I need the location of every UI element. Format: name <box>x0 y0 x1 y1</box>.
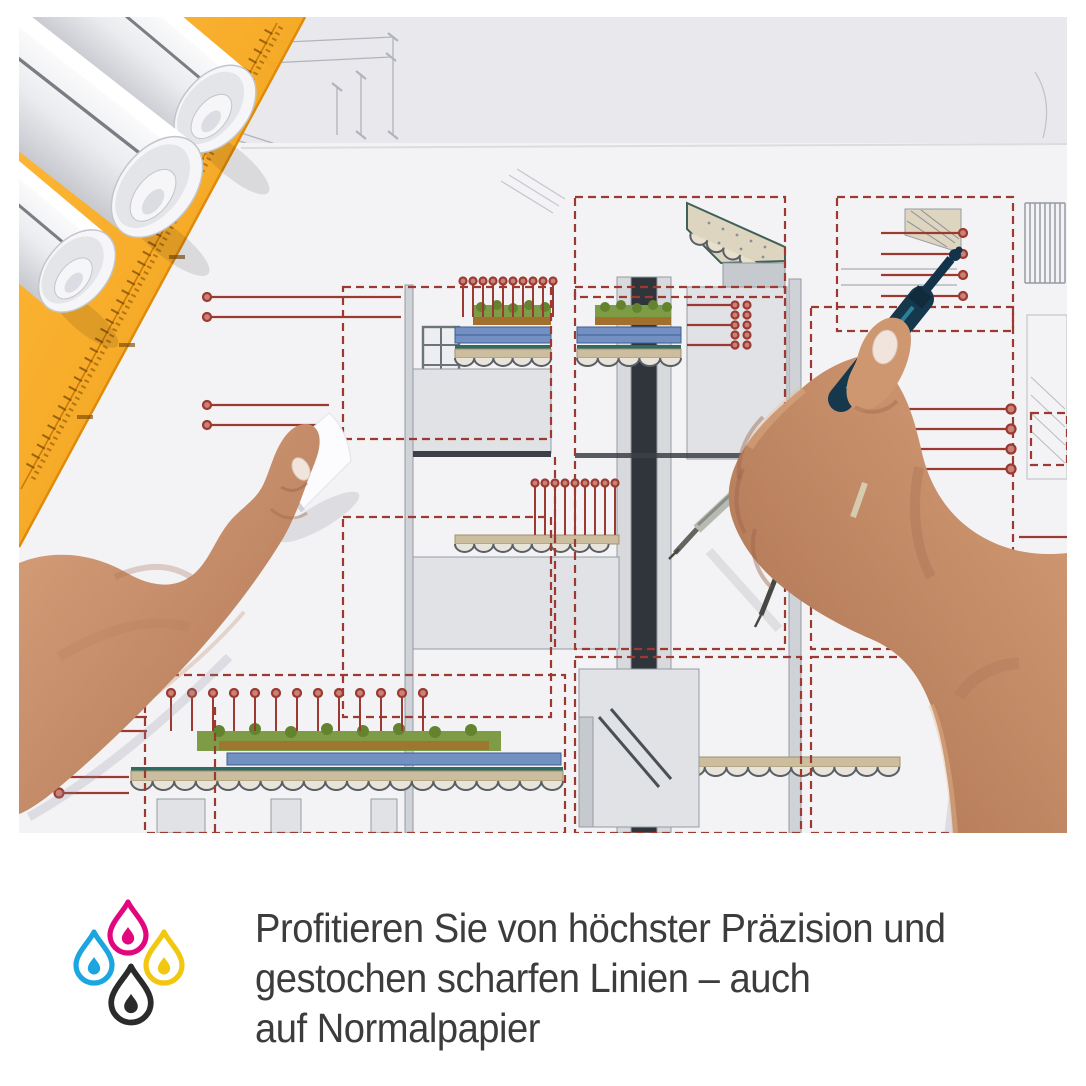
black-drop-icon <box>111 966 151 1022</box>
cmyk-ink-drops-icon <box>50 872 200 1042</box>
blueprint-photo <box>19 17 1067 833</box>
stair-detail <box>579 669 699 827</box>
caption-line-3: auf Normalpapier <box>255 1003 999 1053</box>
photo-scene <box>19 17 1067 833</box>
caption-line-1: Profitieren Sie von höchster Präzision u… <box>255 903 999 953</box>
yellow-drop-icon <box>146 932 182 983</box>
cyan-drop-icon <box>76 932 112 983</box>
caption-text: Profitieren Sie von höchster Präzision u… <box>255 903 999 1053</box>
magenta-drop-icon <box>110 902 146 953</box>
caption-line-2: gestochen scharfen Linien – auch <box>255 953 999 1003</box>
page: { "caption": { "lines": [ "Profitieren S… <box>0 0 1086 1086</box>
